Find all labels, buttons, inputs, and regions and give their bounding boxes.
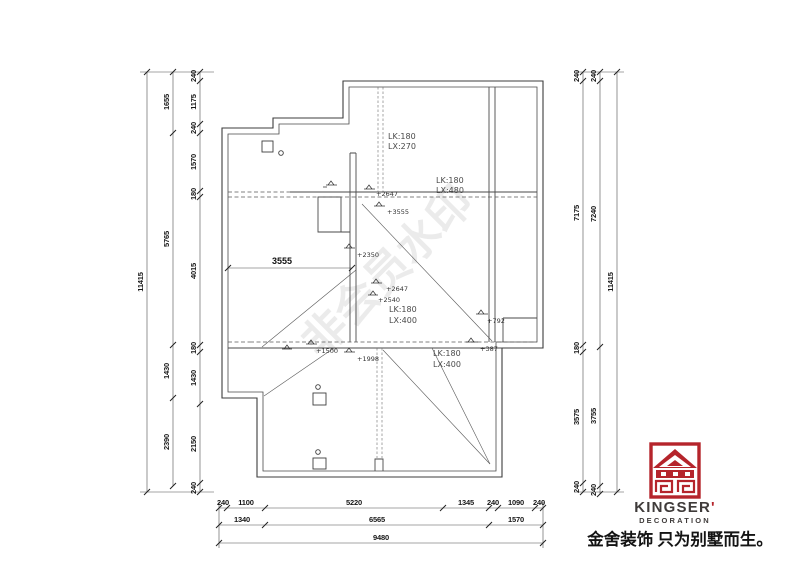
dim-label: 1340 — [234, 515, 250, 524]
elevation-label: +792 — [487, 317, 505, 325]
brand-subtitle: DECORATION — [639, 516, 711, 525]
kingser-emblem-icon — [651, 444, 699, 497]
dim-label: 180 — [572, 342, 581, 354]
dim-label: 240 — [217, 498, 229, 507]
elevation-label: +1500 — [316, 347, 338, 355]
dim-label: 1430 — [189, 370, 198, 386]
dim-label: 7240 — [589, 206, 598, 222]
elevation-label: +387 — [480, 345, 498, 353]
beam-label: LK:180 — [389, 305, 417, 314]
floor-plan-sheet: 非会员水印 — [0, 0, 800, 566]
beam-label: LX:400 — [433, 360, 461, 369]
dim-label: 2150 — [189, 436, 198, 452]
brand-name: KINGSER' — [634, 499, 716, 516]
dim-label: 5765 — [162, 231, 171, 247]
dim-label: 3755 — [589, 408, 598, 424]
left-dimension-chains: 240 1175 240 1570 180 4015 180 1430 2150… — [136, 69, 214, 495]
dim-label: 2390 — [162, 434, 171, 450]
elevation-label: +2647 — [376, 190, 398, 198]
elevation-label: +2647 — [386, 285, 408, 293]
dim-label: 1175 — [189, 94, 198, 109]
dim-label: 240 — [572, 70, 581, 82]
interior-dimension: 3555 — [225, 256, 355, 271]
brand-tagline: 金舍装饰 只为别墅而生。 — [586, 529, 773, 549]
dim-label: 240 — [189, 482, 198, 494]
dim-label: 240 — [572, 481, 581, 493]
bottom-dimension-rows: 240 1100 5220 1345 240 1090 240 1340 656… — [216, 498, 546, 548]
dim-label: 180 — [189, 342, 198, 354]
dim-label: 1570 — [508, 515, 524, 524]
dim-label: 1345 — [458, 498, 474, 507]
dim-label: 1570 — [189, 154, 198, 170]
dim-label: 240 — [189, 70, 198, 82]
elevation-label: +3555 — [387, 208, 409, 216]
dim-label: 240 — [589, 70, 598, 82]
right-dimension-chains: 240 7175 180 3575 240 240 7240 3755 240 … — [572, 69, 624, 497]
kingser-logo: KINGSER' DECORATION 金舍装饰 只为别墅而生。 — [586, 444, 773, 549]
column-post-symbols — [262, 141, 326, 469]
dim-label: 4015 — [189, 263, 198, 279]
elevation-label: +2540 — [378, 296, 400, 304]
dim-label: 3575 — [572, 409, 581, 425]
interior-dim-label: 3555 — [272, 256, 292, 266]
dim-label: 1090 — [508, 498, 524, 507]
beam-label: LK:180 — [436, 176, 464, 185]
dim-label: 180 — [189, 188, 198, 200]
watermark-text: 非会员水印 — [292, 176, 484, 368]
beam-label: LX:270 — [388, 142, 416, 151]
beam-label: LX:400 — [389, 316, 417, 325]
dim-label: 11415 — [606, 272, 615, 291]
dim-label: 1430 — [162, 363, 171, 379]
beam-label: LK:180 — [433, 349, 461, 358]
dim-label: 1100 — [238, 498, 253, 507]
beam-label: LK:180 — [388, 132, 416, 141]
elevation-label: +1998 — [357, 355, 379, 363]
beam-label: LX:480 — [436, 186, 464, 195]
dim-label: 240 — [589, 484, 598, 496]
dim-label: 240 — [533, 498, 545, 507]
floor-plan-canvas: 非会员水印 — [0, 0, 800, 566]
dim-label: 240 — [487, 498, 499, 507]
dim-label: 1655 — [162, 94, 171, 110]
dim-label: 6565 — [369, 515, 385, 524]
dim-label: 11415 — [136, 272, 145, 291]
dim-label: 5220 — [346, 498, 362, 507]
dim-label: 9480 — [373, 533, 389, 542]
dim-label: 7175 — [572, 205, 581, 221]
dim-label: 240 — [189, 122, 198, 134]
elevation-label: +2350 — [357, 251, 379, 259]
